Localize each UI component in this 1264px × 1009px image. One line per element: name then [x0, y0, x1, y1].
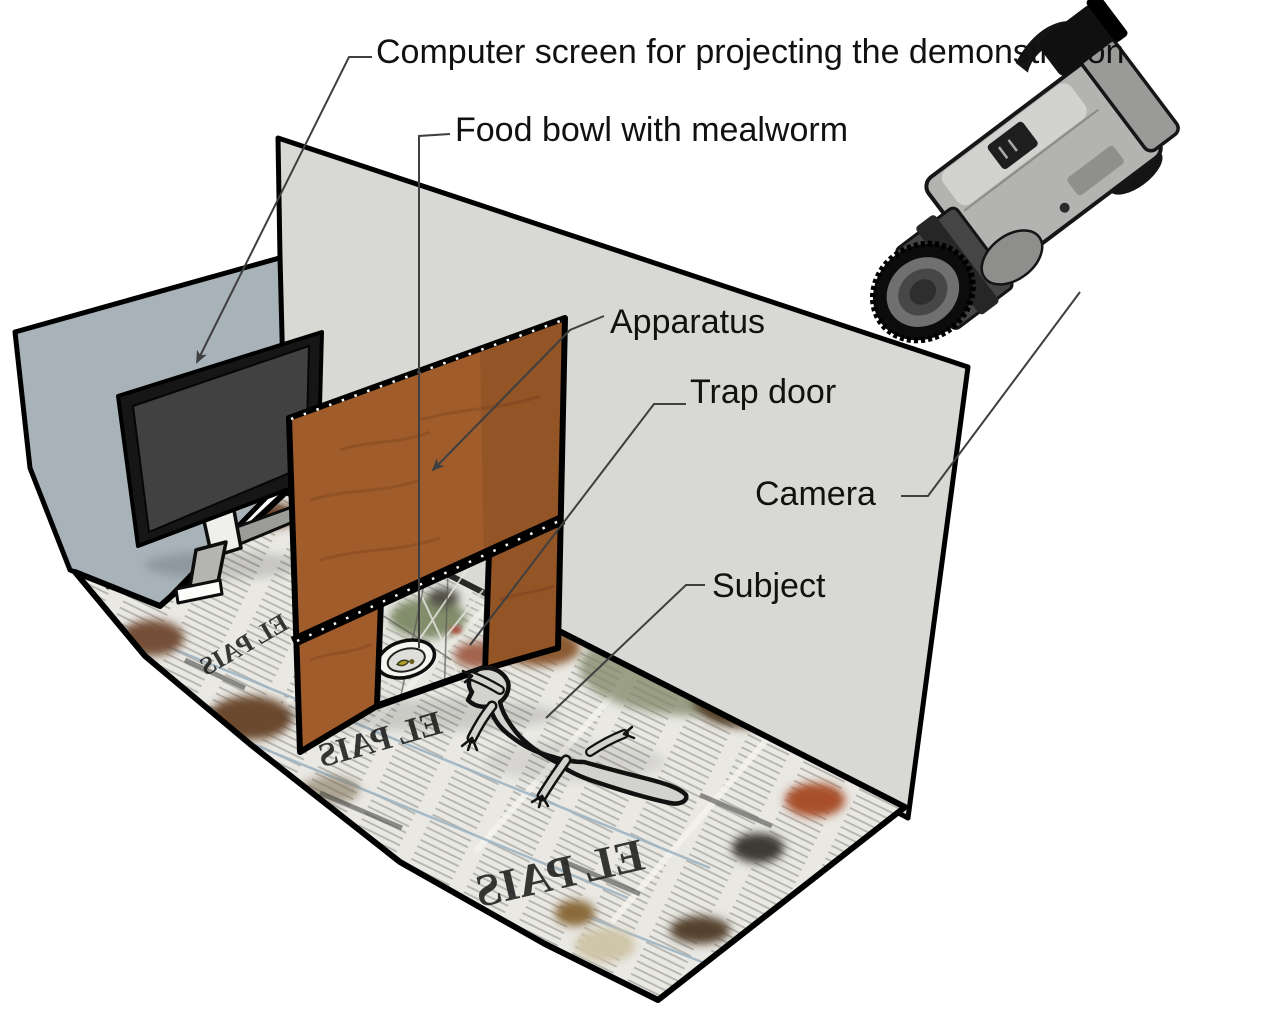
label-apparatus: Apparatus [610, 303, 765, 341]
label-camera: Camera [755, 475, 876, 513]
label-food-bowl: Food bowl with mealworm [455, 111, 848, 149]
label-subject: Subject [712, 567, 826, 605]
label-computer-screen: Computer screen for projecting the demon… [376, 33, 1124, 71]
label-trap-door: Trap door [690, 373, 836, 411]
figure-canvas: EL PAIS EL PAIS EL PAIS EL PAIS [0, 0, 1264, 1009]
setup-diagram: EL PAIS EL PAIS EL PAIS EL PAIS [0, 0, 1264, 1009]
